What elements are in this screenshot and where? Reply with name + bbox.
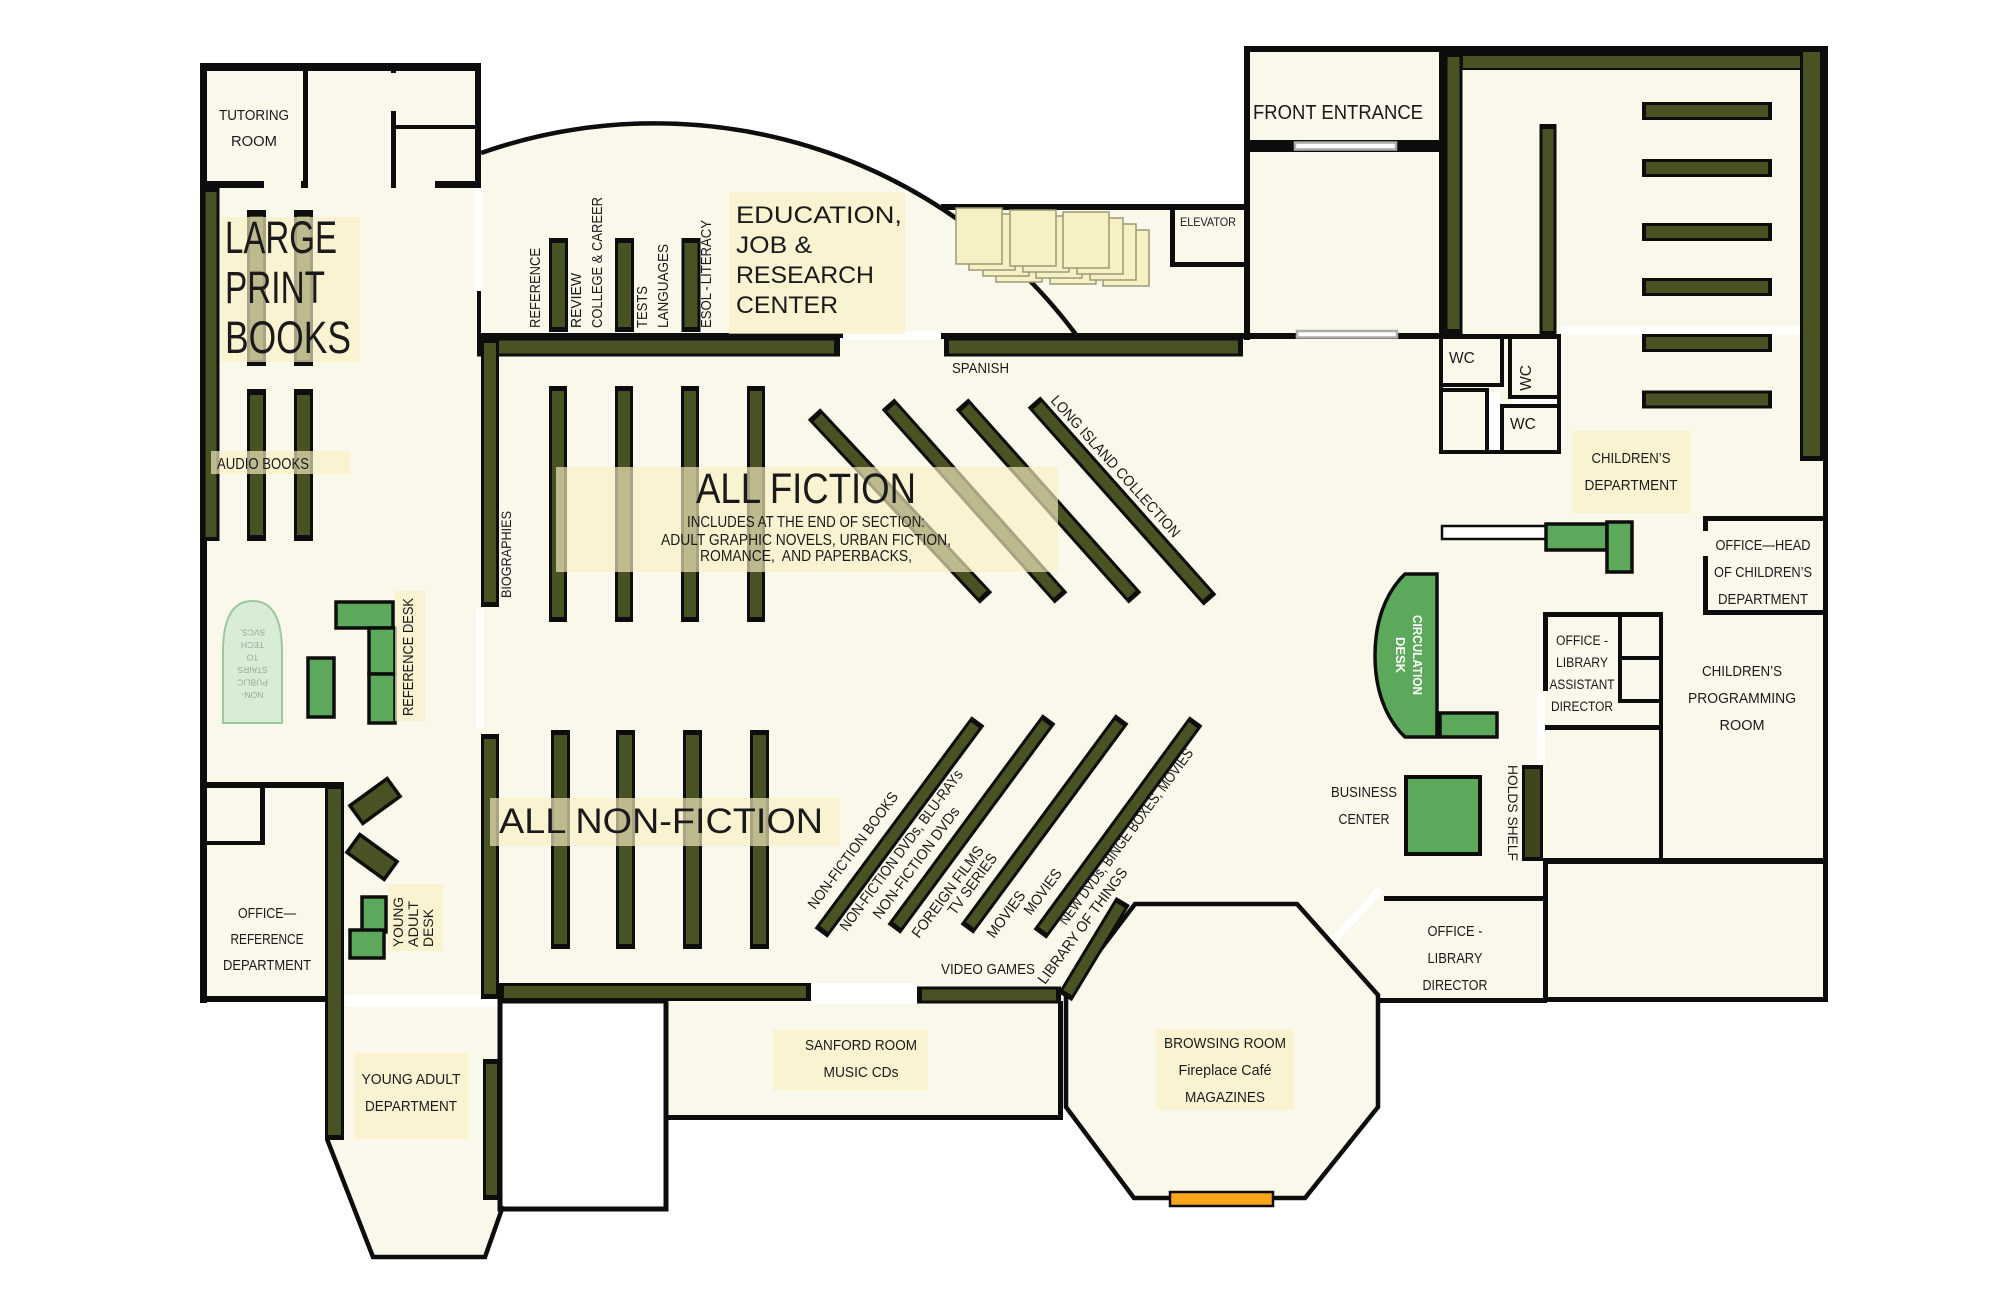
- svg-text:BUSINESS: BUSINESS: [1331, 785, 1397, 801]
- svg-text:OFFICE—HEAD: OFFICE—HEAD: [1716, 538, 1811, 554]
- svg-text:DESK: DESK: [1393, 637, 1408, 674]
- svg-text:YOUNG: YOUNG: [390, 897, 406, 947]
- svg-text:TO: TO: [246, 653, 258, 663]
- svg-text:COLLEGE & CAREER: COLLEGE & CAREER: [589, 197, 606, 328]
- svg-text:DEPARTMENT: DEPARTMENT: [365, 1098, 457, 1115]
- svg-text:OF CHILDREN’S: OF CHILDREN’S: [1714, 565, 1812, 581]
- svg-text:MUSIC CDs: MUSIC CDs: [824, 1064, 899, 1081]
- svg-text:CHILDREN’S: CHILDREN’S: [1592, 450, 1671, 467]
- svg-text:STAIRS: STAIRS: [237, 665, 267, 675]
- svg-text:PROGRAMMING: PROGRAMMING: [1688, 690, 1796, 707]
- svg-text:REFERENCE: REFERENCE: [527, 248, 544, 328]
- svg-text:REFERENCE DESK: REFERENCE DESK: [400, 598, 417, 716]
- svg-text:PUBLIC: PUBLIC: [237, 678, 268, 688]
- svg-text:PRINT: PRINT: [225, 262, 325, 313]
- svg-text:REFERENCE: REFERENCE: [231, 932, 304, 948]
- svg-text:LIBRARY: LIBRARY: [1556, 655, 1608, 670]
- svg-text:WC: WC: [1449, 350, 1475, 367]
- svg-text:DEPARTMENT: DEPARTMENT: [223, 958, 311, 974]
- svg-text:DIRECTOR: DIRECTOR: [1551, 699, 1613, 714]
- svg-text:EDUCATION,: EDUCATION,: [736, 202, 902, 229]
- svg-text:DIRECTOR: DIRECTOR: [1423, 977, 1488, 994]
- svg-text:NON-: NON-: [241, 690, 263, 700]
- svg-text:TESTS: TESTS: [634, 286, 651, 328]
- svg-text:DEPARTMENT: DEPARTMENT: [1718, 592, 1808, 608]
- svg-text:DEPARTMENT: DEPARTMENT: [1585, 477, 1678, 494]
- svg-text:VIDEO GAMES: VIDEO GAMES: [941, 961, 1035, 978]
- svg-text:BIOGRAPHIES: BIOGRAPHIES: [499, 511, 514, 598]
- svg-text:OFFICE—: OFFICE—: [238, 906, 296, 922]
- svg-text:WC: WC: [1518, 365, 1535, 391]
- svg-text:MAGAZINES: MAGAZINES: [1185, 1089, 1265, 1106]
- svg-text:LANGUAGES: LANGUAGES: [655, 244, 672, 328]
- svg-text:CIRCULATION: CIRCULATION: [1410, 615, 1425, 695]
- svg-text:SVCS.: SVCS.: [240, 628, 266, 638]
- svg-text:FRONT ENTRANCE: FRONT ENTRANCE: [1253, 102, 1423, 124]
- svg-text:HOLDS SHELF: HOLDS SHELF: [1505, 765, 1520, 861]
- svg-text:ROMANCE, AND PAPERBACKS,: ROMANCE, AND PAPERBACKS,: [700, 548, 912, 565]
- svg-text:ROOM: ROOM: [1720, 717, 1765, 734]
- svg-text:ALL NON-FICTION: ALL NON-FICTION: [499, 802, 823, 841]
- svg-text:BROWSING ROOM: BROWSING ROOM: [1164, 1035, 1286, 1052]
- svg-text:CHILDREN’S: CHILDREN’S: [1702, 663, 1782, 680]
- svg-text:AUDIO BOOKS: AUDIO BOOKS: [217, 456, 309, 473]
- svg-text:YOUNG ADULT: YOUNG ADULT: [362, 1071, 461, 1088]
- svg-text:TECH: TECH: [241, 640, 264, 650]
- svg-text:CENTER: CENTER: [1339, 812, 1390, 828]
- svg-text:ASSISTANT: ASSISTANT: [1550, 677, 1615, 692]
- svg-text:JOB &: JOB &: [736, 232, 812, 259]
- svg-text:RESEARCH: RESEARCH: [736, 262, 874, 289]
- svg-text:SPANISH: SPANISH: [952, 360, 1009, 377]
- svg-text:WC: WC: [1510, 416, 1536, 433]
- svg-text:DESK: DESK: [420, 908, 436, 947]
- svg-text:Fireplace Café: Fireplace Café: [1179, 1062, 1272, 1079]
- svg-text:REVIEW: REVIEW: [568, 272, 585, 328]
- svg-text:TUTORING: TUTORING: [219, 108, 289, 124]
- svg-text:OFFICE -: OFFICE -: [1556, 633, 1608, 648]
- svg-text:LIBRARY: LIBRARY: [1428, 950, 1483, 967]
- svg-text:ROOM: ROOM: [231, 134, 277, 150]
- svg-text:ESOL - LITERACY: ESOL - LITERACY: [698, 220, 715, 328]
- svg-text:ADULT: ADULT: [405, 901, 421, 947]
- svg-text:ELEVATOR: ELEVATOR: [1180, 215, 1236, 229]
- svg-text:INCLUDES AT THE END OF SECTION: INCLUDES AT THE END OF SECTION:: [687, 514, 925, 531]
- svg-text:CENTER: CENTER: [736, 292, 838, 319]
- svg-text:LARGE: LARGE: [225, 212, 337, 263]
- svg-text:ADULT GRAPHIC NOVELS, URBAN FI: ADULT GRAPHIC NOVELS, URBAN FICTION,: [661, 532, 951, 549]
- svg-text:SANFORD ROOM: SANFORD ROOM: [805, 1037, 917, 1054]
- svg-text:ALL FICTION: ALL FICTION: [696, 465, 916, 513]
- svg-text:BOOKS: BOOKS: [225, 312, 351, 363]
- svg-text:OFFICE -: OFFICE -: [1428, 923, 1483, 940]
